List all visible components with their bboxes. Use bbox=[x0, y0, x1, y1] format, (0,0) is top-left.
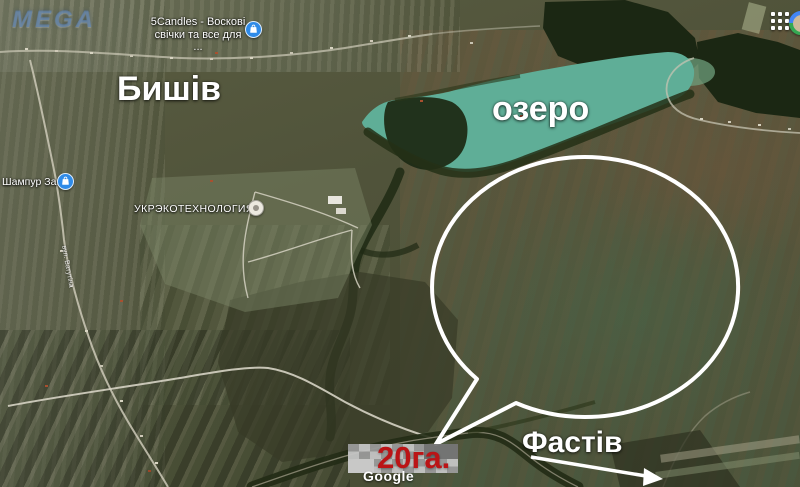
poi-label-5candles[interactable]: 5Candles - Воскові свічки та все для ... bbox=[150, 16, 246, 54]
satellite-map-canvas[interactable]: Бишів озеро Фастів 20га. вул. Ватутіна M… bbox=[0, 0, 800, 487]
watermark: MEGA bbox=[12, 6, 96, 34]
apps-grid-icon[interactable] bbox=[770, 11, 790, 31]
town-label: Бишів bbox=[117, 72, 221, 106]
direction-arrow-shaft bbox=[531, 457, 646, 476]
shopping-bag-icon bbox=[60, 173, 71, 191]
poi-pin-shampur[interactable] bbox=[57, 173, 74, 190]
google-logo[interactable]: Google bbox=[363, 469, 414, 483]
lake-label: озеро bbox=[492, 92, 589, 126]
direction-label: Фастів bbox=[522, 428, 622, 458]
generic-poi-icon bbox=[253, 205, 259, 211]
direction-arrow-head bbox=[643, 468, 663, 486]
poi-label-ukreco[interactable]: УКРЭКОТЕХНОЛОГИЯ bbox=[134, 203, 254, 215]
highlight-circle-callout bbox=[432, 157, 738, 444]
poi-pin-5candles[interactable] bbox=[245, 21, 262, 38]
poi-pin-ukreco[interactable] bbox=[248, 200, 264, 216]
avatar-ring-icon bbox=[793, 15, 800, 32]
shopping-bag-icon bbox=[248, 21, 259, 39]
